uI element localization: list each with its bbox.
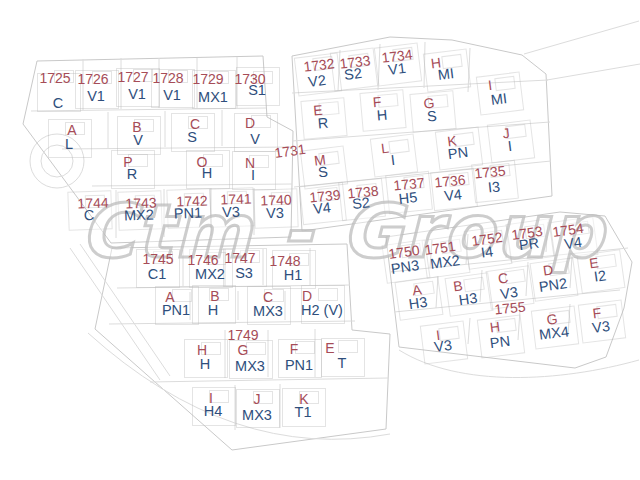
parcel-number: D — [245, 116, 255, 130]
parcel-number: 1749 — [227, 328, 258, 342]
parcel-code: PN3 — [390, 258, 420, 276]
parcel-code: I2 — [593, 268, 607, 284]
parcel-code: S — [317, 164, 328, 179]
parcel-code: H4 — [204, 404, 223, 418]
parcel-code: R — [127, 167, 137, 181]
parcel-code: MX2 — [195, 267, 225, 281]
parcel-number: 1725 — [39, 71, 70, 85]
building-footprint-box — [318, 288, 338, 301]
parcel-number: J — [254, 392, 261, 406]
parcel-code: V3 — [433, 338, 452, 354]
parcel-code: V3 — [591, 319, 610, 335]
parcel-code: H3 — [458, 291, 478, 307]
building-footprint-box — [338, 340, 358, 353]
parcel-code: MX2 — [429, 253, 460, 271]
parcel-number: 1745 — [142, 252, 173, 266]
parcel-code: L — [65, 137, 73, 151]
parcel-code: V4 — [563, 235, 583, 251]
plat-map: Ctm - Group 1725C1726V11727V11728V11729M… — [0, 0, 640, 480]
parcel-code: C — [84, 208, 95, 222]
parcel-code: V — [133, 133, 143, 147]
parcel-code: PR — [518, 236, 540, 253]
parcel-number: 1726 — [77, 72, 108, 86]
parcel-code: V1 — [128, 87, 146, 101]
parcel-code: I3 — [487, 179, 500, 194]
parcel-number: 1732 — [303, 56, 336, 74]
parcel-number: B — [210, 289, 219, 303]
parcel-code: S — [187, 130, 197, 144]
parcel-number: 1747 — [224, 251, 255, 265]
parcel-code: S2 — [343, 66, 362, 82]
parcel-code: V2 — [307, 73, 326, 89]
parcel-code: H2 (V) — [301, 303, 343, 317]
building-footprint-box — [172, 289, 192, 302]
parcel-code: V3 — [266, 206, 284, 221]
parcel-number: 1746 — [187, 253, 218, 267]
parcel-code: PN — [447, 145, 469, 161]
parcel-number: D — [302, 289, 312, 303]
parcel-code: S2 — [351, 195, 370, 211]
parcel-code: H — [376, 108, 388, 123]
parcel-code: PN2 — [538, 276, 568, 294]
parcel-number: L — [380, 141, 389, 156]
parcel-code: PN1 — [162, 303, 190, 317]
parcel-number: 1731 — [274, 142, 307, 160]
parcel-code: H3 — [408, 295, 428, 311]
parcel-code: PN — [489, 334, 511, 350]
parcel-code: MX4 — [538, 324, 569, 342]
parcel-code: V — [250, 132, 260, 146]
parcel-code: R — [317, 116, 329, 131]
parcel-code: C1 — [148, 267, 167, 281]
parcel-code: MX3 — [253, 304, 283, 318]
parcel-number: G — [238, 343, 249, 357]
parcel-code: T1 — [295, 405, 312, 419]
parcel-number: H — [489, 319, 501, 334]
parcel-code: MI — [490, 91, 508, 107]
parcel-number: 1755 — [494, 299, 526, 316]
parcel-code: S — [427, 109, 438, 124]
parcel-code: H1 — [284, 268, 303, 282]
parcel-number: C — [263, 290, 273, 304]
building-footprint-box — [246, 342, 266, 355]
parcel-code: V4 — [312, 200, 331, 216]
parcel-code: MI — [437, 66, 455, 82]
building-footprint-box — [494, 76, 515, 91]
parcel-number: 1729 — [192, 72, 223, 86]
parcel-number: 1735 — [474, 163, 506, 180]
parcel-code: V3 — [222, 205, 240, 220]
parcel-code: C — [53, 96, 63, 110]
parcel-number: F — [290, 342, 299, 356]
parcel-code: H — [200, 357, 210, 371]
parcel-code: MX2 — [124, 207, 154, 222]
parcel-code: I4 — [480, 244, 494, 260]
parcel-code: MX3 — [235, 359, 265, 373]
parcel-number: 1728 — [152, 71, 183, 85]
parcel-number: H — [197, 343, 207, 357]
parcel-code: H5 — [398, 190, 418, 206]
parcel-code: PN1 — [174, 206, 203, 221]
parcel-code: T — [338, 356, 347, 370]
parcel-code: MX1 — [198, 90, 228, 104]
parcel-number: E — [325, 341, 334, 355]
parcel-code: MX3 — [242, 408, 272, 422]
parcel-code: S1 — [248, 83, 266, 97]
parcel-number: 1727 — [117, 70, 148, 84]
parcel-code: V4 — [443, 187, 462, 203]
parcel-code: PN1 — [285, 358, 313, 372]
parcel-number: D — [542, 262, 554, 277]
parcel-code: I — [251, 168, 255, 182]
parcel-number: C — [497, 270, 509, 285]
parcel-code: S3 — [235, 266, 253, 280]
parcel-code: V1 — [387, 61, 406, 77]
parcel-code: V1 — [87, 89, 105, 103]
parcel-number: 1748 — [269, 254, 300, 268]
parcel-number: A — [67, 123, 76, 137]
parcel-code: H — [202, 166, 212, 180]
parcel-code: H — [208, 303, 218, 317]
parcel-code: V1 — [163, 88, 181, 102]
